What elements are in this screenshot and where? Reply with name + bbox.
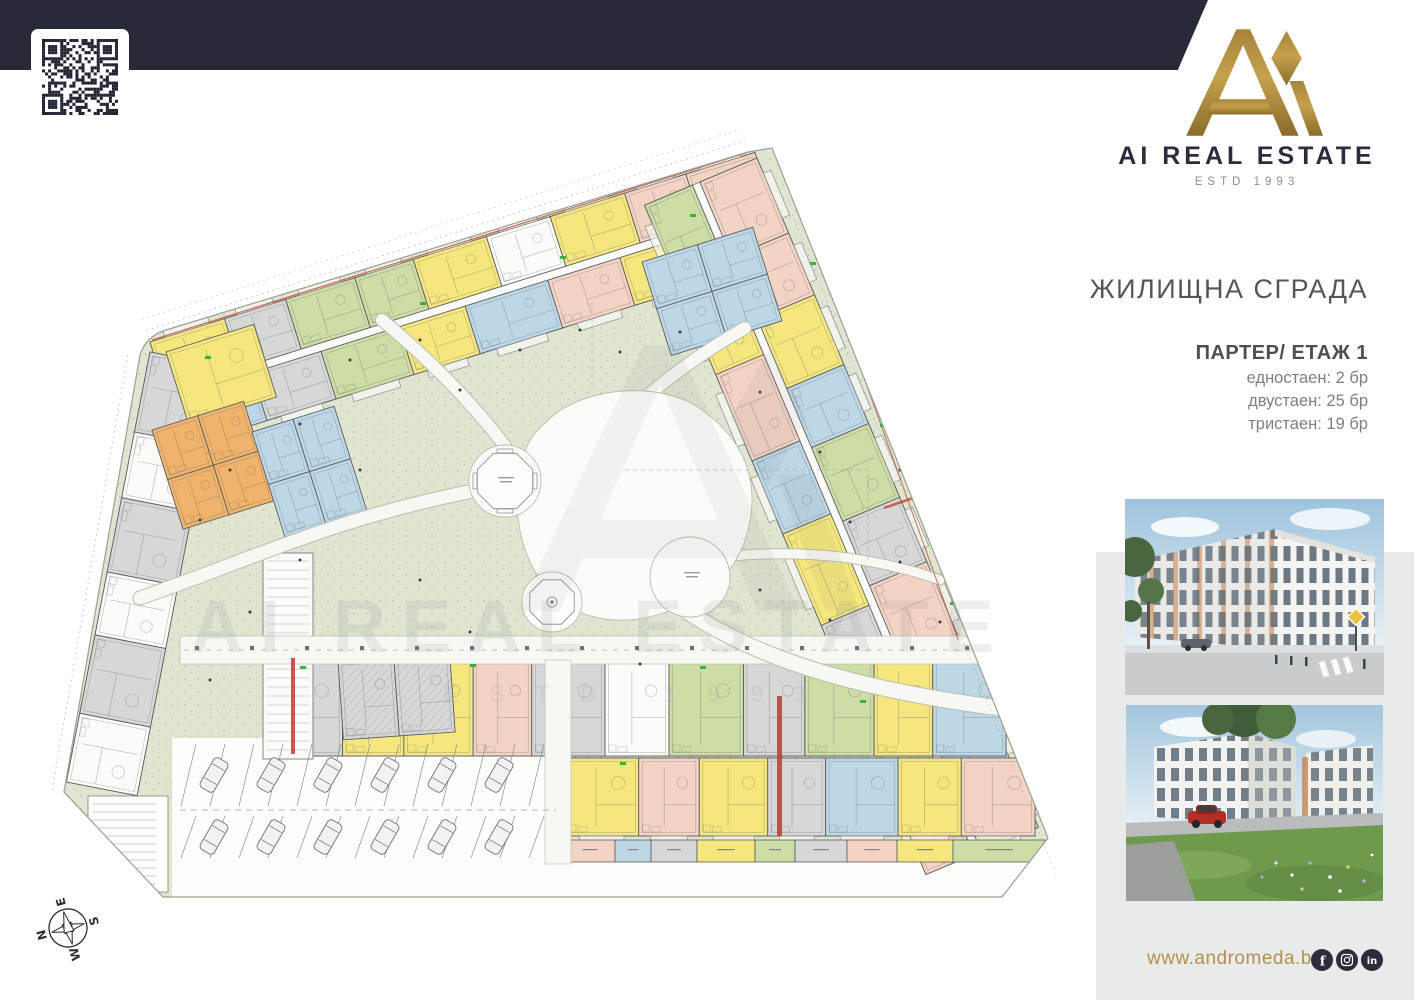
svg-text:f: f bbox=[1320, 955, 1327, 970]
website-link[interactable]: www.andromeda.bg bbox=[1147, 948, 1323, 970]
page-title: ЖИЛИЩНА СГРАДА bbox=[1090, 274, 1368, 305]
watermark-subtext: ESTD 1993 bbox=[443, 681, 837, 708]
listing-info: ЖИЛИЩНА СГРАДА ПАРТЕР/ ЕТАЖ 1 едностаен:… bbox=[1090, 274, 1368, 434]
brand-name: AI REAL ESTATE bbox=[1113, 142, 1381, 171]
top-navy-bar bbox=[0, 0, 1208, 70]
social-icons: f in bbox=[1311, 949, 1383, 971]
brand-estd: ESTD 1993 bbox=[1113, 176, 1381, 188]
compass-e: E bbox=[53, 896, 69, 908]
brand-logo: AI REAL ESTATE ESTD 1993 bbox=[1113, 22, 1381, 188]
compass-n: N bbox=[34, 928, 50, 941]
building-render-2 bbox=[1126, 705, 1383, 901]
stat-two-room: двустаен: 25 бр bbox=[1090, 391, 1368, 411]
compass-rose: N E S W bbox=[27, 889, 109, 969]
svg-text:in: in bbox=[1367, 956, 1378, 967]
stat-one-room: едностаен: 2 бр bbox=[1090, 368, 1368, 388]
facebook-icon[interactable]: f bbox=[1311, 949, 1333, 971]
brand-logo-mark-icon bbox=[1171, 22, 1323, 140]
qr-code bbox=[31, 29, 129, 124]
linkedin-icon[interactable]: in bbox=[1361, 949, 1383, 971]
site-area bbox=[64, 128, 1060, 898]
instagram-icon[interactable] bbox=[1336, 949, 1358, 971]
compass-w: W bbox=[67, 946, 84, 962]
floor-label: ПАРТЕР/ ЕТАЖ 1 bbox=[1090, 342, 1368, 365]
watermark-text: AI REAL ESTATE bbox=[190, 585, 1010, 668]
building-render-1 bbox=[1125, 499, 1384, 695]
stat-three-room: тристаен: 19 бр bbox=[1090, 414, 1368, 434]
compass-s: S bbox=[86, 915, 102, 927]
qr-code-image bbox=[42, 39, 118, 115]
brochure-page: AI REAL ESTATE ESTD 1993 N E S W bbox=[0, 0, 1414, 1000]
